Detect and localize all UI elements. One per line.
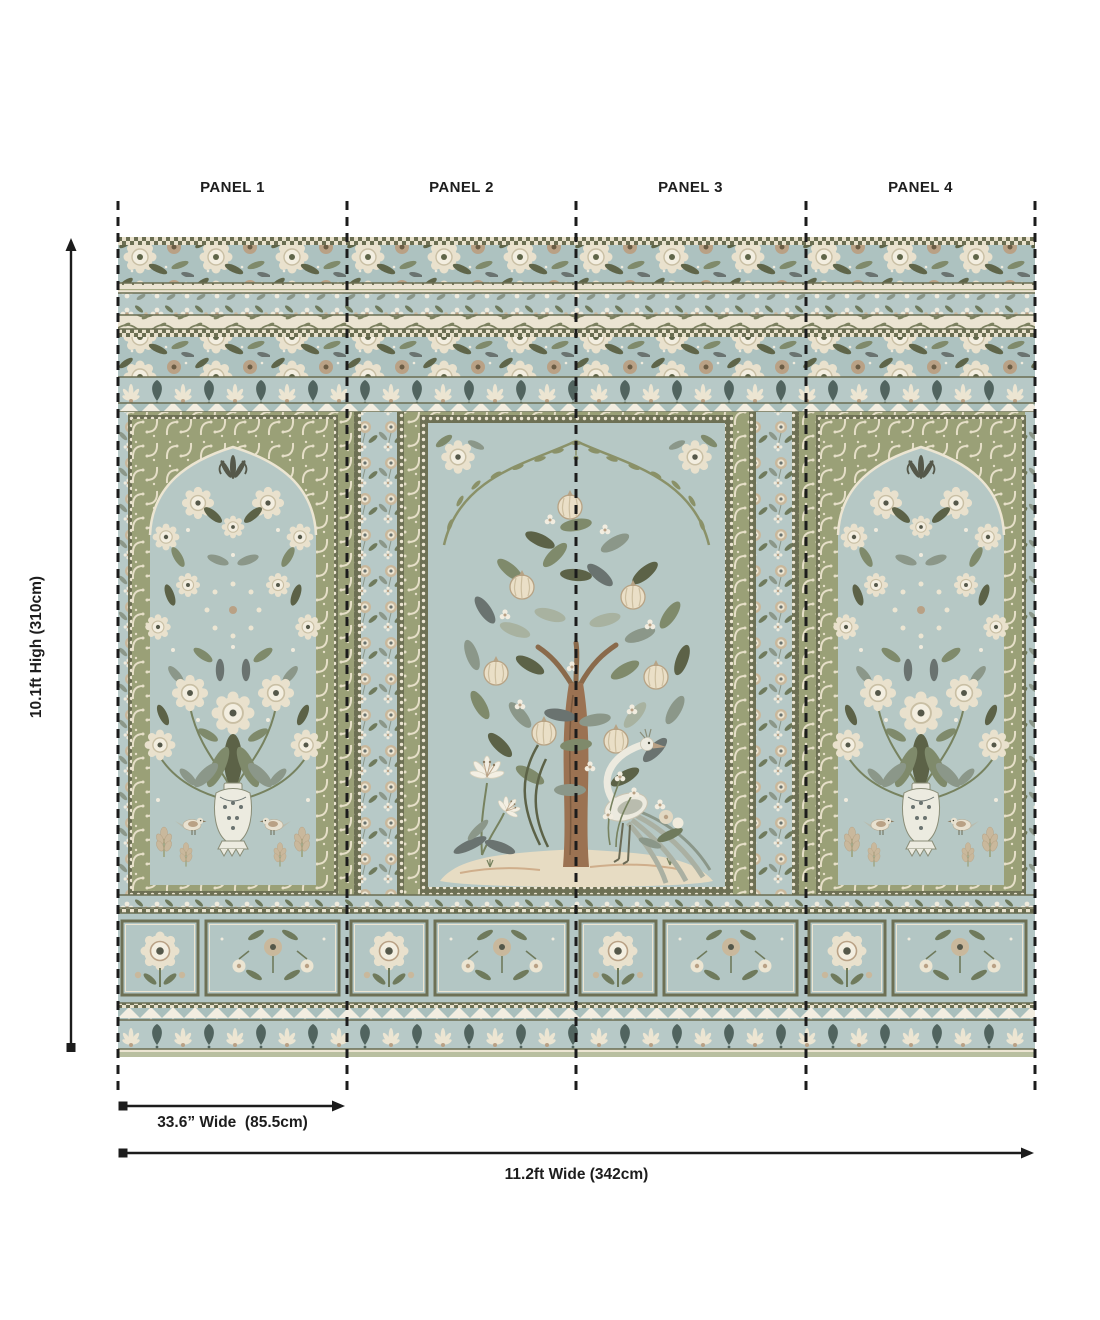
total-width-dimension-arrow <box>119 1148 1035 1159</box>
total-width-dimension-label: 11.2ft Wide (342cm) <box>118 1166 1035 1184</box>
panel-4-label: PANEL 4 <box>806 179 1035 196</box>
panel-2-label: PANEL 2 <box>347 179 576 196</box>
panel-3-label: PANEL 3 <box>576 179 805 196</box>
panel-width-dimension-arrow <box>119 1101 346 1112</box>
panel-width-dimension-label: 33.6” Wide (85.5cm) <box>118 1114 347 1132</box>
height-dimension-arrow <box>66 238 77 1052</box>
height-dimension-label: 10.1ft High (310cm) <box>28 576 46 718</box>
mural-size-diagram: PANEL 1 PANEL 2 PANEL 3 PANEL 4 10.1ft H… <box>0 0 1100 1320</box>
panel-1-label: PANEL 1 <box>118 179 347 196</box>
panel-cut-lines <box>118 201 1035 1096</box>
